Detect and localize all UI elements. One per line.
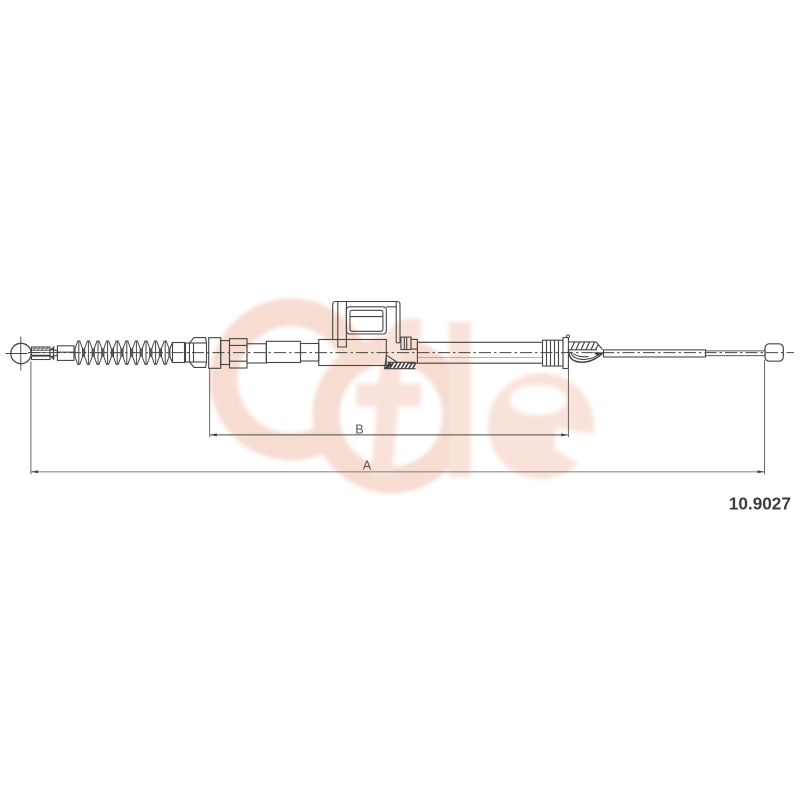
svg-text:10.9027: 10.9027 — [729, 494, 791, 514]
svg-text:A: A — [363, 459, 372, 473]
svg-text:B: B — [355, 423, 363, 437]
